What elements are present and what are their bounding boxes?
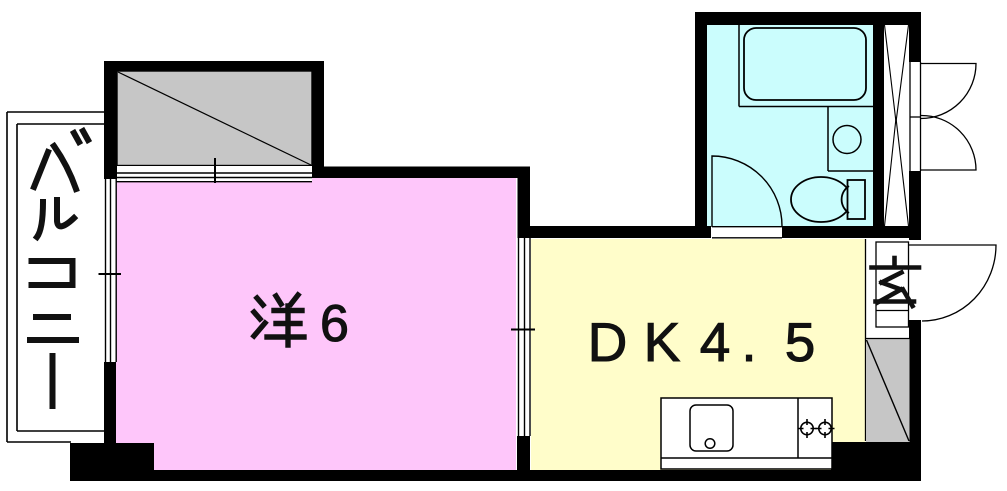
svg-text:.: . (741, 311, 756, 373)
svg-text:K: K (644, 311, 681, 373)
svg-text:4: 4 (700, 311, 731, 373)
svg-text:6: 6 (320, 295, 349, 353)
svg-text:D: D (588, 311, 628, 373)
svg-text:5: 5 (785, 311, 816, 373)
